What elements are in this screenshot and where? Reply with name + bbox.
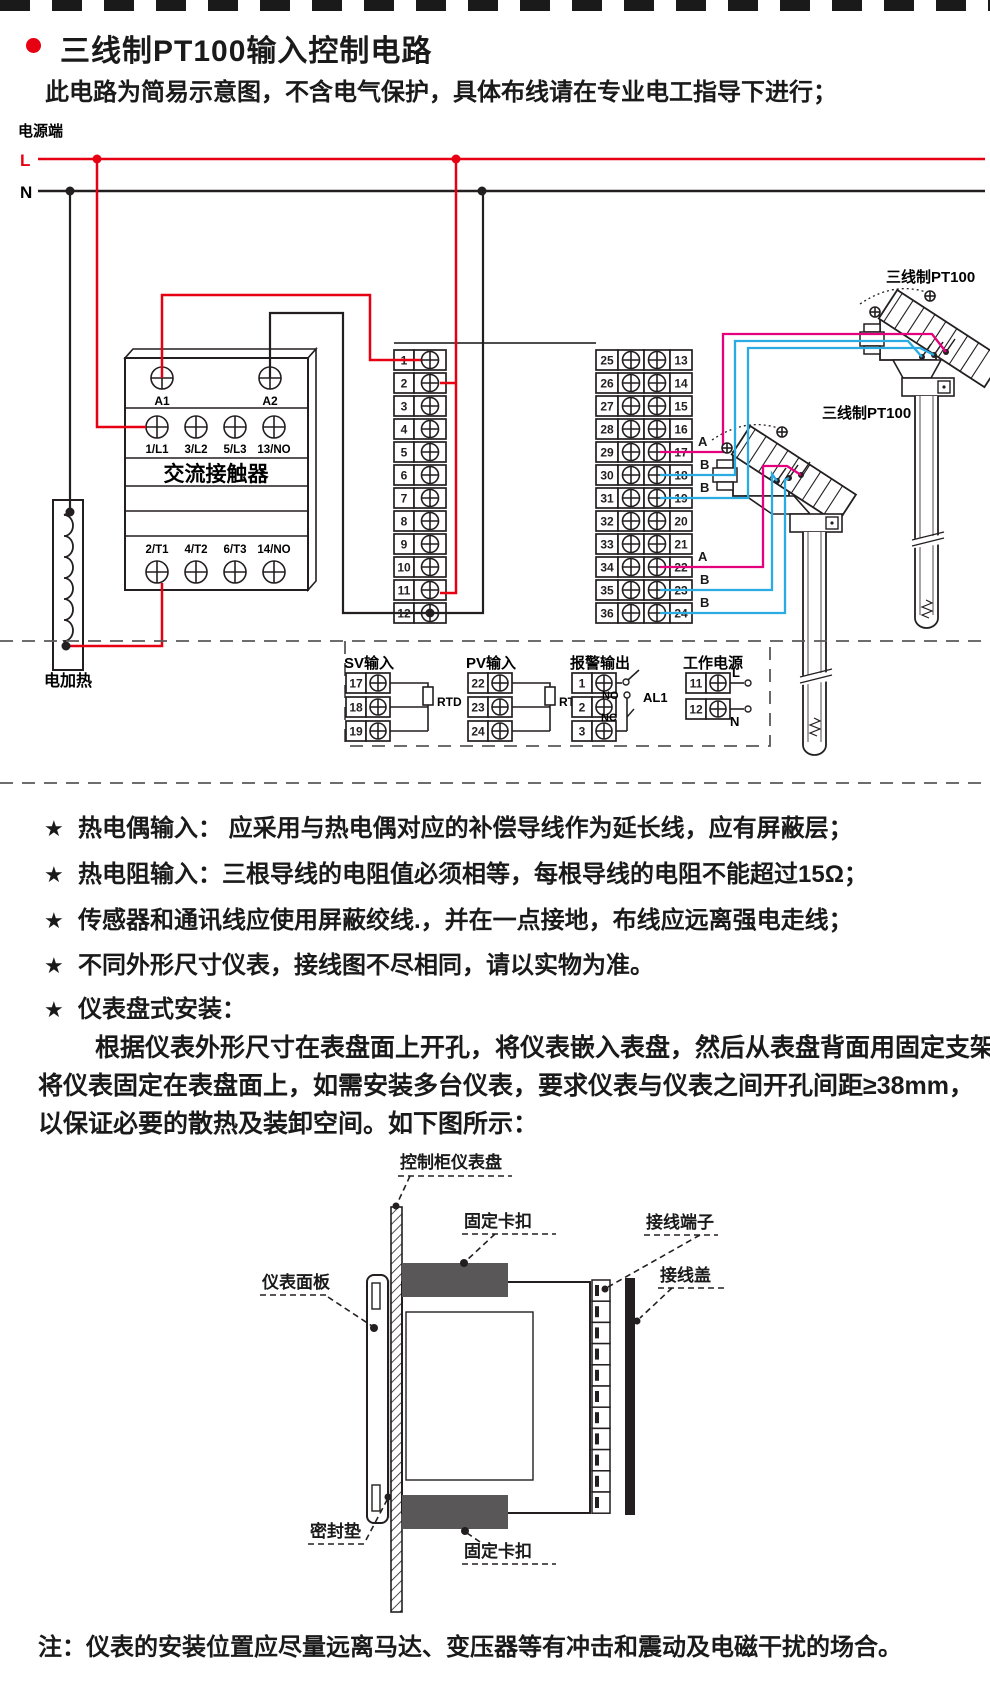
screw-terminal-icon: [925, 291, 935, 301]
terminal-screw-slot: [595, 1497, 599, 1508]
terminal-screw-slot: [595, 1349, 599, 1360]
terminal-cell: [592, 1344, 610, 1365]
terminal-number: 19: [349, 725, 363, 739]
junction-dot: [426, 609, 435, 618]
terminal-number: 21: [674, 538, 688, 552]
probe-tube: [803, 532, 826, 755]
screw-terminal-icon: [422, 467, 439, 484]
screw-terminal-icon: [722, 443, 732, 453]
screw-terminal-icon: [422, 582, 439, 599]
terminal-screw-slot: [595, 1433, 599, 1444]
rtd-resistor-icon: [545, 687, 555, 705]
relay-contact-icon: [624, 692, 630, 698]
terminal-a1-label: A1: [154, 394, 170, 408]
terminal-number: 24: [471, 725, 485, 739]
screw-terminal-icon: [649, 375, 666, 392]
terminal-number: 32: [600, 515, 614, 529]
terminal-number: 34: [600, 561, 614, 575]
screw-terminal-icon: [623, 490, 640, 507]
terminal-3l2-label: 3/L2: [184, 444, 207, 456]
screw-terminal-icon: [370, 723, 386, 739]
screw-terminal-icon: [623, 375, 640, 392]
screw-terminal-icon: [596, 723, 612, 739]
terminal-number: 2: [579, 701, 586, 715]
label-wiring-cover: 接线盖: [660, 1265, 711, 1285]
rtd-resistor-icon: [423, 687, 433, 705]
terminal-number: 17: [349, 677, 363, 691]
terminal-screw-slot: [595, 1306, 599, 1317]
terminal-number: 27: [600, 400, 614, 414]
wire-tag-b3: B: [700, 572, 709, 587]
terminal-number: 23: [471, 701, 485, 715]
screw-terminal-icon: [623, 605, 640, 622]
install-paragraph-line3: 以保证必要的散热及装卸空间。如下图所示：: [38, 1104, 538, 1140]
wiring-schematic: 电源端 L N 电加热 A1 A2 1/L1 3/L2 5/L3 13/NO 交…: [0, 110, 990, 790]
screw-terminal-icon: [492, 723, 508, 739]
screw-terminal-icon: [623, 444, 640, 461]
ac-contactor: A1 A2 1/L1 3/L2 5/L3 13/NO 交流接触器 2/T1 4/…: [125, 349, 316, 590]
terminal-cell: [592, 1322, 610, 1343]
terminal-number: 35: [600, 584, 614, 598]
terminal-cell: [592, 1450, 610, 1471]
screw-terminal-icon: [422, 559, 439, 576]
heater-label: 电加热: [44, 671, 92, 690]
section-working-power: 工作电源 1112 L N: [683, 654, 751, 729]
terminal-number: 9: [401, 538, 408, 552]
terminal-screw-slot: [595, 1285, 599, 1296]
terminal-number: 10: [397, 561, 411, 575]
terminal-number: 4: [401, 423, 408, 437]
junction-dot: [478, 187, 487, 196]
bullet-dimensions: ★不同外形尺寸仪表，接线图不尽相同，请以实物为准。: [44, 945, 654, 980]
terminal-2t1-label: 2/T1: [145, 544, 169, 556]
terminal-number: 26: [600, 377, 614, 391]
screw-terminal-icon: [146, 416, 168, 438]
instrument-inner-case: [406, 1312, 533, 1480]
bullet-rtd: ★热电阻输入：三根导线的电阻值必须相等，每根导线的电阻不能超过15Ω；: [44, 854, 868, 889]
panel-install-diagram: 控制柜仪表盘 固定卡扣 接线端子 接线盖 仪表面板 密封垫 固定卡扣: [0, 1140, 990, 1660]
star-icon: ★: [44, 862, 78, 888]
junction-dot: [66, 187, 75, 196]
alarm-relay-label: AL1: [643, 690, 668, 705]
bullet-shielding: ★传感器和通讯线应使用屏蔽绞线.，并在一点接地，布线应远离强电走线；: [44, 900, 853, 935]
label-cabinet-panel: 控制柜仪表盘: [400, 1152, 502, 1172]
left-terminal-strip: 123456789101112: [394, 350, 446, 623]
bullet-thermocouple: ★热电偶输入： 应采用与热电偶对应的补偿导线作为延长线，应有屏蔽层；: [44, 808, 853, 843]
terminal-cell: [592, 1471, 610, 1492]
label-fixing-clip-top: 固定卡扣: [464, 1211, 532, 1231]
screw-terminal-icon: [422, 398, 439, 415]
terminal-6t3-label: 6/T3: [223, 544, 246, 556]
label-faceplate: 仪表面板: [261, 1272, 331, 1292]
page-title: 三线制PT100输入控制电路: [60, 26, 432, 70]
section-alarm-output: 报警输出 123 AL1 NO NC: [570, 654, 668, 741]
terminal-number: 33: [600, 538, 614, 552]
terminal-number: 16: [674, 423, 688, 437]
screw-terminal-icon: [649, 352, 666, 369]
terminal-number: 2: [401, 377, 408, 391]
junction-dot: [93, 155, 102, 164]
supply-l-label: L: [732, 665, 740, 680]
terminal-number: 11: [398, 584, 411, 598]
terminal-screw-slot: [595, 1370, 599, 1381]
wire-tag-b1: B: [700, 457, 709, 472]
terminal-number: 12: [689, 703, 703, 717]
alarm-no-label: NO: [602, 690, 619, 702]
terminal-number: 7: [401, 492, 408, 506]
title-bullet-icon: [26, 38, 41, 53]
terminal-number: 14: [674, 377, 688, 391]
open-terminal-icon: [745, 706, 751, 712]
screw-terminal-icon: [263, 416, 285, 438]
screw-terminal-icon: [263, 561, 285, 583]
terminal-number: 30: [600, 469, 614, 483]
wire-tag-a1: A: [698, 434, 708, 449]
screw-terminal-icon: [623, 421, 640, 438]
sv-title: SV输入: [344, 654, 394, 672]
terminal-number: 29: [600, 446, 614, 460]
screw-terminal-icon: [185, 561, 207, 583]
terminal-cell: [592, 1407, 610, 1428]
pt100-label-upper: 三线制PT100: [886, 268, 975, 286]
screw-terminal-icon: [224, 416, 246, 438]
screw-terminal-icon: [623, 582, 640, 599]
terminal-number: 3: [401, 400, 408, 414]
junction-dot: [62, 642, 71, 651]
terminal-number: 25: [600, 354, 614, 368]
open-terminal-icon: [745, 680, 751, 686]
screw-terminal-icon: [623, 513, 640, 530]
wire-tag-b2: B: [700, 480, 709, 495]
terminal-screw-slot: [595, 1476, 599, 1487]
terminal-1l1-label: 1/L1: [145, 444, 169, 456]
wiring-cover-bar: [625, 1278, 635, 1515]
terminal-number: 20: [674, 515, 688, 529]
label-gasket: 密封垫: [310, 1521, 361, 1541]
screw-terminal-icon: [623, 398, 640, 415]
screw-terminal-icon: [777, 427, 787, 437]
screw-terminal-icon: [422, 536, 439, 553]
probe-tube: [915, 396, 938, 628]
star-icon: ★: [44, 997, 78, 1023]
wire-tag-a2: A: [698, 549, 708, 564]
terminal-number: 1: [579, 677, 586, 691]
section-pv-input: PV输入 222324 RTD: [466, 654, 584, 741]
terminal-4t2-label: 4/T2: [184, 544, 207, 556]
terminal-screw-slot: [595, 1327, 599, 1338]
terminal-5l3-label: 5/L3: [223, 444, 246, 456]
power-side-label: 电源端: [18, 122, 63, 140]
screw-terminal-icon: [370, 699, 386, 715]
bottom-note: 注：仪表的安装位置应尽量远离马达、变压器等有冲击和震动及电磁干扰的场合。: [38, 1627, 902, 1662]
star-icon: ★: [44, 953, 78, 979]
terminal-a2-label: A2: [262, 394, 278, 408]
screw-terminal-icon: [710, 701, 726, 717]
screw-terminal-icon: [870, 307, 880, 317]
junction-dot: [66, 508, 75, 517]
line-n-label: N: [20, 183, 32, 202]
screw-terminal-icon: [649, 398, 666, 415]
star-icon: ★: [44, 816, 78, 842]
screw-terminal-icon: [492, 675, 508, 691]
screw-terminal-icon: [623, 467, 640, 484]
screw-terminal-icon: [224, 561, 246, 583]
section-sv-input: SV输入 171819 RTD: [344, 654, 462, 741]
fixing-clip-top: [402, 1263, 508, 1297]
wire-tag-b4: B: [700, 595, 709, 610]
terminal-cell: [592, 1365, 610, 1386]
electric-heater: 电加热: [44, 500, 92, 690]
terminal-screw-slot: [595, 1455, 599, 1466]
terminal-cell: [592, 1386, 610, 1407]
pt100-sensor-upper: 三线制PT100: [860, 268, 990, 628]
terminal-number: 6: [401, 469, 408, 483]
screw-terminal-icon: [623, 352, 640, 369]
sv-rtd-label: RTD: [437, 695, 462, 709]
terminal-number: 36: [600, 607, 614, 621]
terminal-number: 5: [401, 446, 408, 460]
terminal-14no-label: 14/NO: [257, 544, 290, 556]
terminal-13no-label: 13/NO: [257, 444, 290, 456]
terminal-number: 15: [674, 400, 688, 414]
instrument-faceplate: [367, 1275, 388, 1523]
junction-dot: [452, 155, 461, 164]
screw-terminal-icon: [422, 444, 439, 461]
label-wiring-terminal: 接线端子: [646, 1212, 714, 1232]
screw-terminal-icon: [649, 536, 666, 553]
terminal-number: 18: [349, 701, 363, 715]
screw-terminal-icon: [649, 513, 666, 530]
terminal-cell: [592, 1428, 610, 1449]
screw-terminal-icon: [422, 513, 439, 530]
screw-terminal-icon: [422, 490, 439, 507]
cabinet-panel-bar: [391, 1207, 402, 1612]
supply-n-label: N: [730, 714, 739, 729]
terminal-cell: [592, 1492, 610, 1513]
screw-terminal-icon: [422, 352, 439, 369]
line-l-label: L: [20, 151, 30, 170]
screw-terminal-icon: [146, 561, 168, 583]
terminal-number: 3: [579, 725, 586, 739]
pv-title: PV输入: [466, 654, 516, 672]
terminal-screw-slot: [595, 1391, 599, 1402]
page-subtitle: 此电路为简易示意图，不含电气保护，具体布线请在专业电工指导下进行；: [45, 72, 837, 107]
install-paragraph-line1: 根据仪表外形尺寸在表盘面上开孔，将仪表嵌入表盘，然后从表盘背面用固定支架: [38, 1028, 990, 1064]
pt100-label-lower: 三线制PT100: [822, 404, 911, 422]
screw-terminal-icon: [185, 416, 207, 438]
terminal-number: 28: [600, 423, 614, 437]
screw-terminal-icon: [710, 675, 726, 691]
right-terminal-strip: 2513261427152816291730183119322033213422…: [596, 350, 692, 623]
bullet-panel-mount: ★仪表盘式安装：: [44, 989, 246, 1024]
screw-terminal-icon: [623, 536, 640, 553]
screw-terminal-icon: [422, 375, 439, 392]
screw-terminal-icon: [492, 699, 508, 715]
terminal-screw-slot: [595, 1412, 599, 1423]
alarm-title: 报警输出: [570, 654, 630, 672]
terminal-number: 11: [690, 677, 703, 691]
page-top-dashed-border: [0, 0, 990, 11]
alarm-nc-label: NC: [601, 712, 617, 724]
wiring-terminal-strip: [592, 1280, 610, 1513]
label-fixing-clip-bottom: 固定卡扣: [464, 1541, 532, 1561]
terminal-number: 31: [600, 492, 614, 506]
screw-terminal-icon: [649, 421, 666, 438]
fixing-clip-bottom: [402, 1495, 508, 1529]
screw-terminal-icon: [623, 559, 640, 576]
star-icon: ★: [44, 908, 78, 934]
install-paragraph-line2: 将仪表固定在表盘面上，如需安装多台仪表，要求仪表与仪表之间开孔间距≥38mm，: [38, 1066, 974, 1102]
terminal-number: 22: [471, 677, 485, 691]
terminal-number: 13: [674, 354, 688, 368]
pt100-sensor-lower: 三线制PT100: [712, 404, 911, 755]
contactor-name: 交流接触器: [164, 462, 270, 486]
screw-terminal-icon: [596, 675, 612, 691]
wire-tags: A B B A B B: [698, 434, 709, 610]
screw-terminal-icon: [422, 421, 439, 438]
terminal-number: 8: [401, 515, 408, 529]
terminal-cell: [592, 1301, 610, 1322]
screw-terminal-icon: [370, 675, 386, 691]
